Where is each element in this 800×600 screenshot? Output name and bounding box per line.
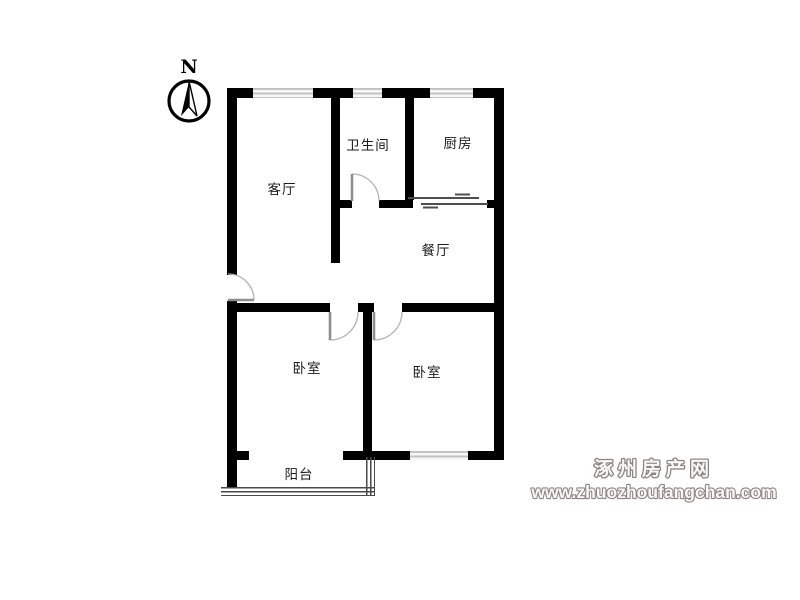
- floor-plan: N 客厅 卫生间 厨房 餐厅 卧室 卧室 阳台 涿州房产网 www.zhuozh…: [0, 0, 800, 600]
- bedroom-right-door-arc: [374, 312, 402, 340]
- room-label-balcony: 阳台: [285, 463, 314, 483]
- compass-needle-right: [189, 81, 197, 116]
- room-label-dining: 餐厅: [422, 239, 451, 259]
- room-label-kitchen: 厨房: [444, 132, 473, 152]
- room-label-bedroom-right: 卧室: [413, 361, 442, 381]
- room-label-living: 客厅: [268, 178, 297, 198]
- doors-overlay: [0, 0, 800, 600]
- watermark-site-name: 涿州房产网: [594, 457, 714, 480]
- compass-needle-left: [181, 81, 189, 116]
- north-compass: N: [164, 47, 216, 127]
- watermark: 涿州房产网 www.zhuozhoufangchan.com: [522, 452, 790, 506]
- compass-north-label: N: [180, 56, 197, 78]
- entry-door-arc: [228, 274, 254, 300]
- watermark-site-url: www.zhuozhoufangchan.com: [530, 482, 776, 502]
- bedroom-left-door-arc: [330, 312, 358, 340]
- bathroom-door-arc: [352, 174, 379, 201]
- room-label-bathroom: 卫生间: [346, 134, 390, 154]
- room-label-bedroom-left: 卧室: [293, 357, 322, 377]
